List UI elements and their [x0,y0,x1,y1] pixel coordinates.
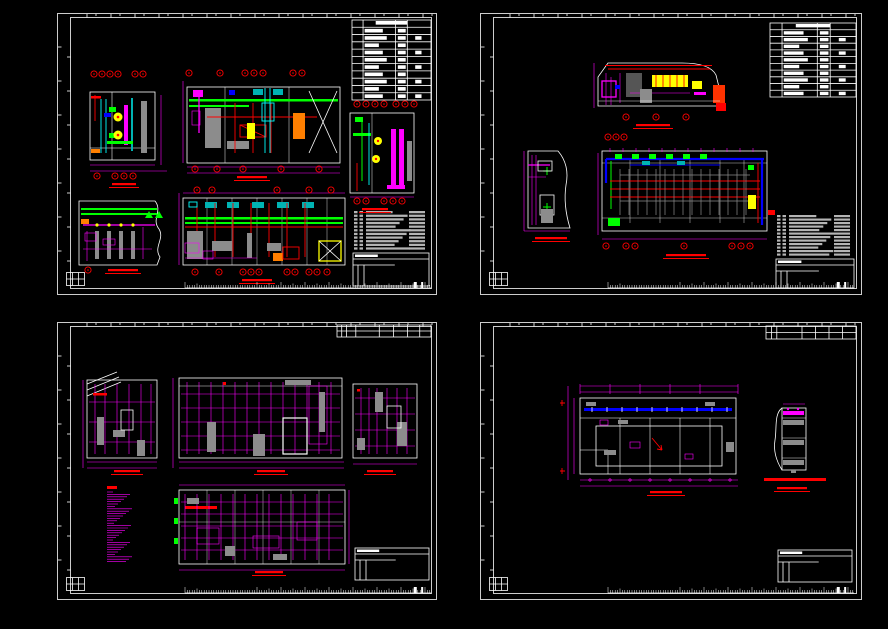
cad-canvas [0,0,888,629]
plan-view-b [183,81,340,173]
plan-view [174,485,349,570]
elevation-view [594,63,726,111]
drawing-sheet-4[interactable] [480,322,862,600]
section-view-right [774,404,806,473]
generated-annotations [608,326,856,593]
plan-view [560,384,738,486]
generated-annotations [532,23,856,288]
plan-view-e [179,193,345,265]
section-view-left [83,372,157,468]
drawing-sheet-3[interactable] [57,322,437,600]
drawing-sheet-1[interactable] [57,13,437,295]
generated-annotations [85,20,431,288]
sheet-frame [58,323,437,600]
drawing-sheet-2[interactable] [480,13,862,295]
section-view-left [524,151,570,231]
section-view-center [173,378,344,468]
section-view-a [90,92,167,171]
section-view-right [353,384,417,464]
section-view-c [350,113,414,197]
plan-view-main [598,148,767,239]
partial-plan-view-d [79,201,163,265]
sheet-frame [481,323,862,600]
